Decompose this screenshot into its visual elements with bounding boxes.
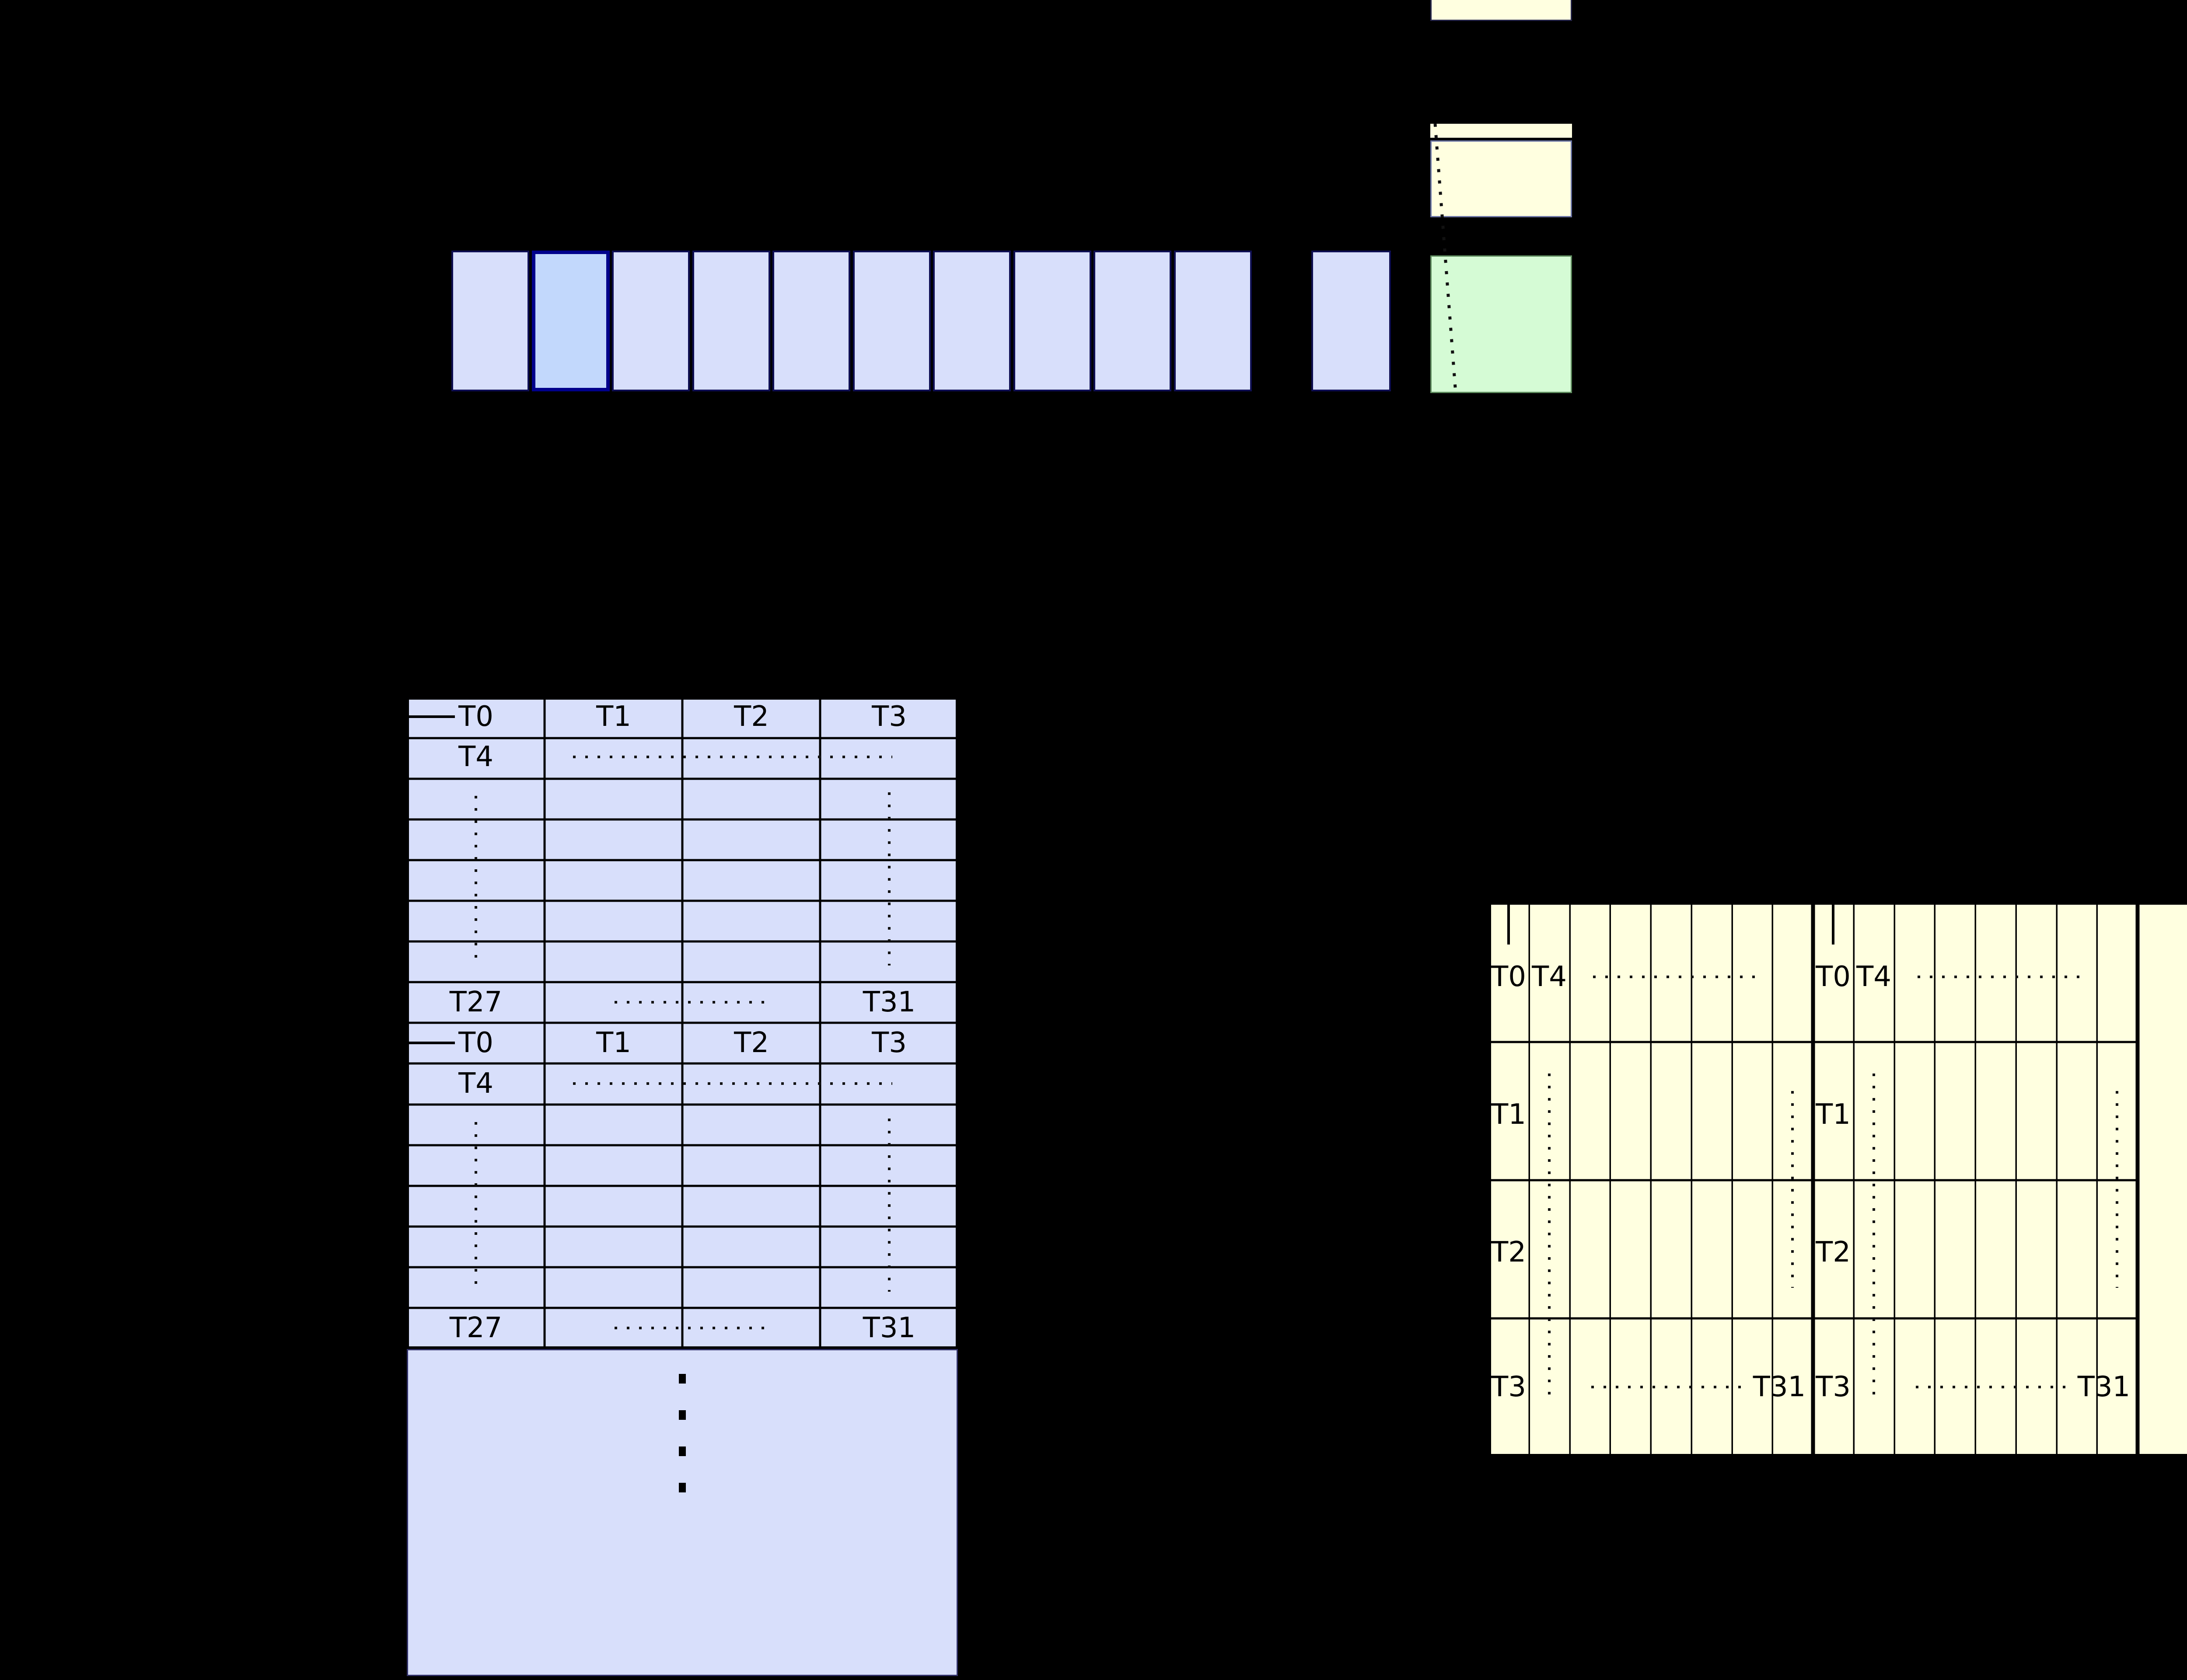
thread-label: T31 [2078, 1373, 2131, 1401]
thread-label: T4 [1532, 963, 1567, 991]
green-box [1430, 255, 1572, 393]
thread-label: T1 [596, 703, 631, 731]
thread-label: T1 [1491, 1101, 1526, 1129]
thread-label: T3 [872, 703, 907, 731]
highlighted-blue-box [532, 251, 610, 391]
bottom-blue-panel [407, 1349, 958, 1676]
thread-label: T3 [872, 1029, 907, 1057]
thread-label: T3 [1816, 1373, 1851, 1401]
vertical-ellipsis-dot [679, 1374, 686, 1384]
blue-box-6 [853, 251, 931, 391]
thread-label: T1 [596, 1029, 631, 1057]
yellow-box-main [1430, 140, 1572, 217]
thread-label: T4 [458, 1070, 493, 1098]
thread-label: T2 [734, 1029, 769, 1057]
blue-box-7 [933, 251, 1011, 391]
blue-box-3 [612, 251, 690, 391]
thread-label: T0 [458, 703, 493, 731]
thread-label: T0 [1491, 963, 1526, 991]
thread-label: T2 [1491, 1238, 1526, 1266]
thread-label: T3 [1491, 1373, 1526, 1401]
thread-label: T31 [1753, 1373, 1806, 1401]
lone-blue-box [1311, 251, 1391, 391]
blue-box-1 [451, 251, 529, 391]
thread-label: T2 [734, 703, 769, 731]
thread-label: T4 [458, 743, 493, 771]
yellow-strip [1430, 124, 1572, 140]
thread-label: T27 [450, 988, 503, 1016]
yellow-box-top [1430, 0, 1572, 21]
vertical-ellipsis-dot [679, 1410, 686, 1420]
thread-label: T4 [1856, 963, 1891, 991]
thread-label: T31 [863, 988, 916, 1016]
blue-box-5 [772, 251, 850, 391]
diagram-canvas: T0 T1 T2 T3 T4 T27 T31 T0 T1 T2 T3 T4 T2… [0, 0, 2187, 1680]
thread-label: T27 [450, 1314, 503, 1342]
thread-label: T2 [1816, 1238, 1851, 1266]
vertical-ellipsis-dot [679, 1446, 686, 1456]
blue-box-8 [1013, 251, 1091, 391]
blue-box-9 [1093, 251, 1171, 391]
blue-box-4 [692, 251, 770, 391]
thread-label: T31 [863, 1314, 916, 1342]
thread-label: T0 [458, 1029, 493, 1057]
vertical-ellipsis-dot [679, 1483, 686, 1492]
blue-box-10 [1174, 251, 1252, 391]
left-table [407, 697, 958, 1349]
thread-label: T0 [1816, 963, 1851, 991]
thread-label: T1 [1816, 1101, 1851, 1129]
